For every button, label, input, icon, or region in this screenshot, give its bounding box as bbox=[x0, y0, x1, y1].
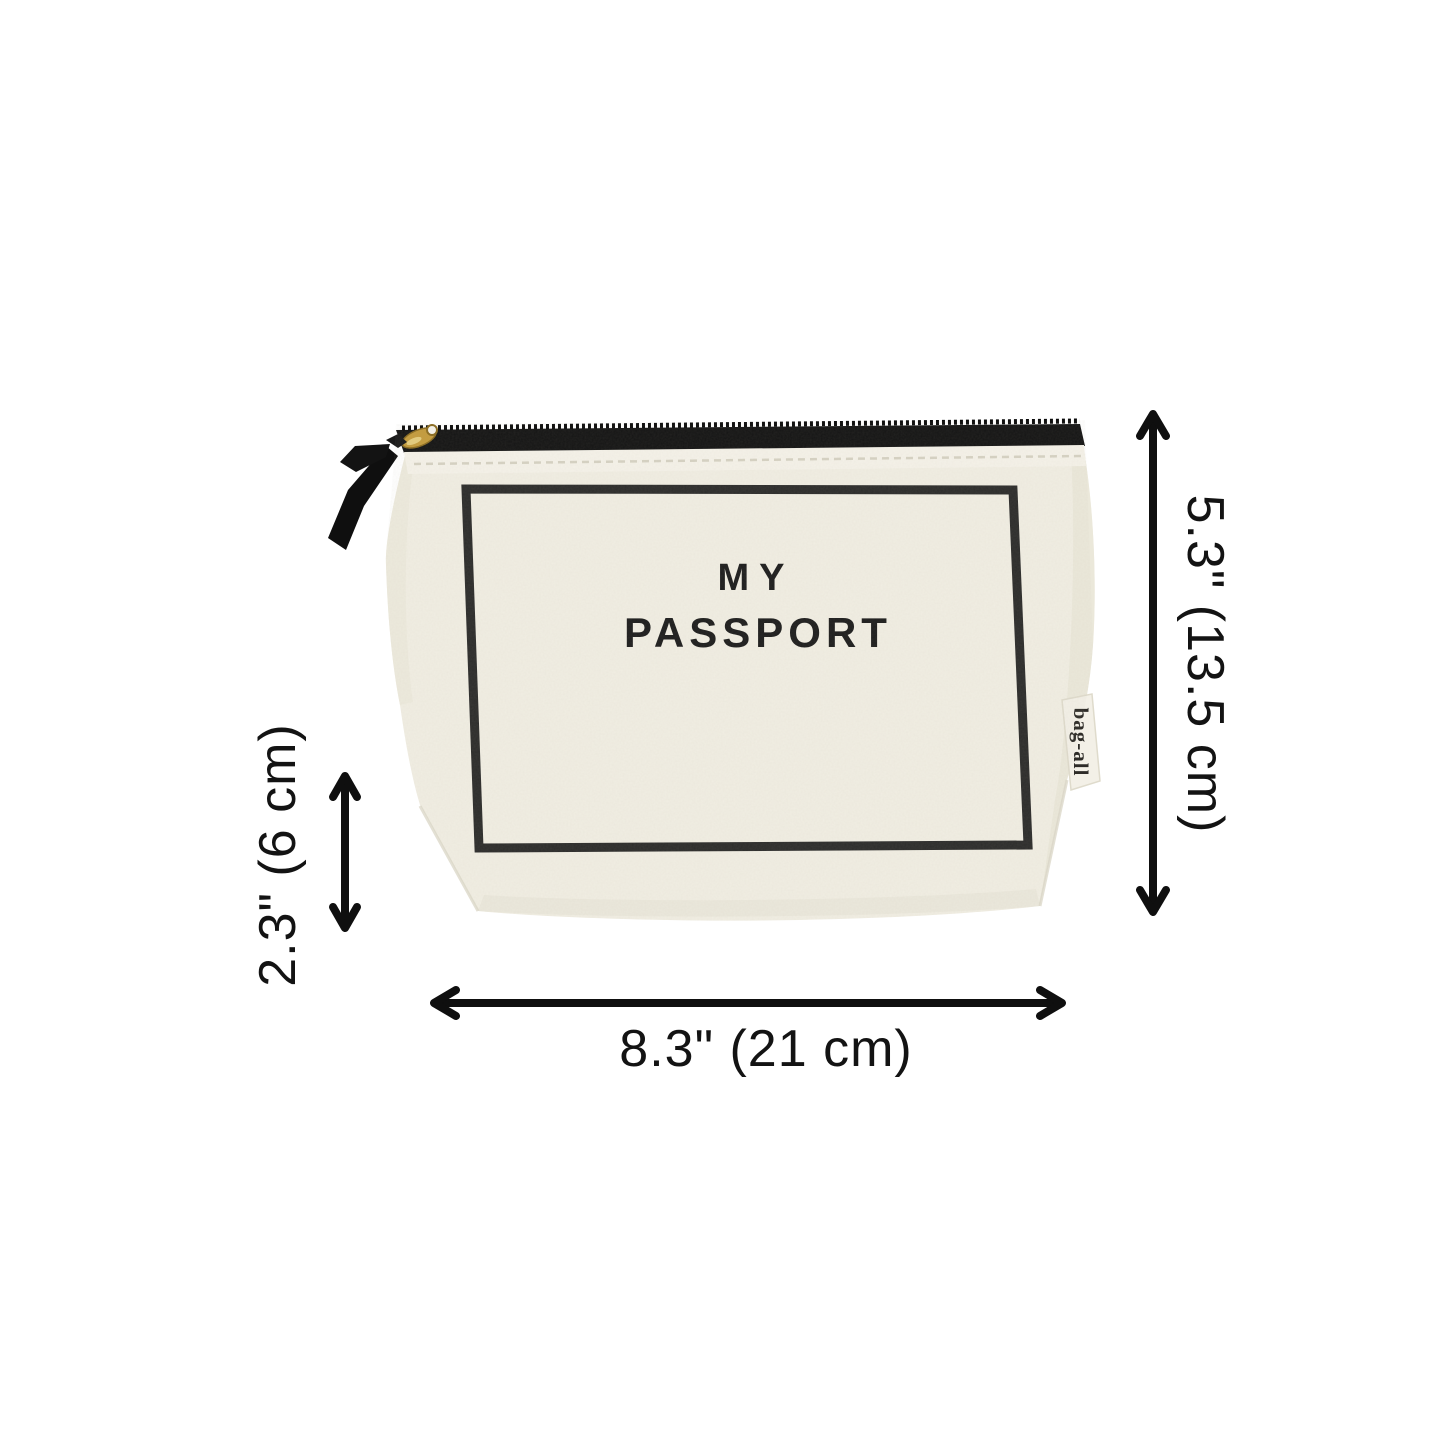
width-label: 8.3" (21 cm) bbox=[619, 1020, 912, 1078]
width-arrow-icon bbox=[434, 990, 1062, 1016]
product-dimension-image: MY PASSPORT bag-all 5.3" ( bbox=[0, 0, 1445, 1445]
product-photo: MY PASSPORT bag-all bbox=[328, 415, 1110, 935]
diagram-canvas: MY PASSPORT bag-all 5.3" ( bbox=[0, 0, 1445, 1445]
height-arrow-icon bbox=[1140, 414, 1166, 912]
depth-arrow-icon bbox=[333, 776, 357, 928]
height-label: 5.3" (13.5 cm) bbox=[1176, 495, 1234, 834]
canvas-texture bbox=[370, 415, 1110, 935]
depth-label: 2.3" (6 cm) bbox=[249, 723, 307, 987]
